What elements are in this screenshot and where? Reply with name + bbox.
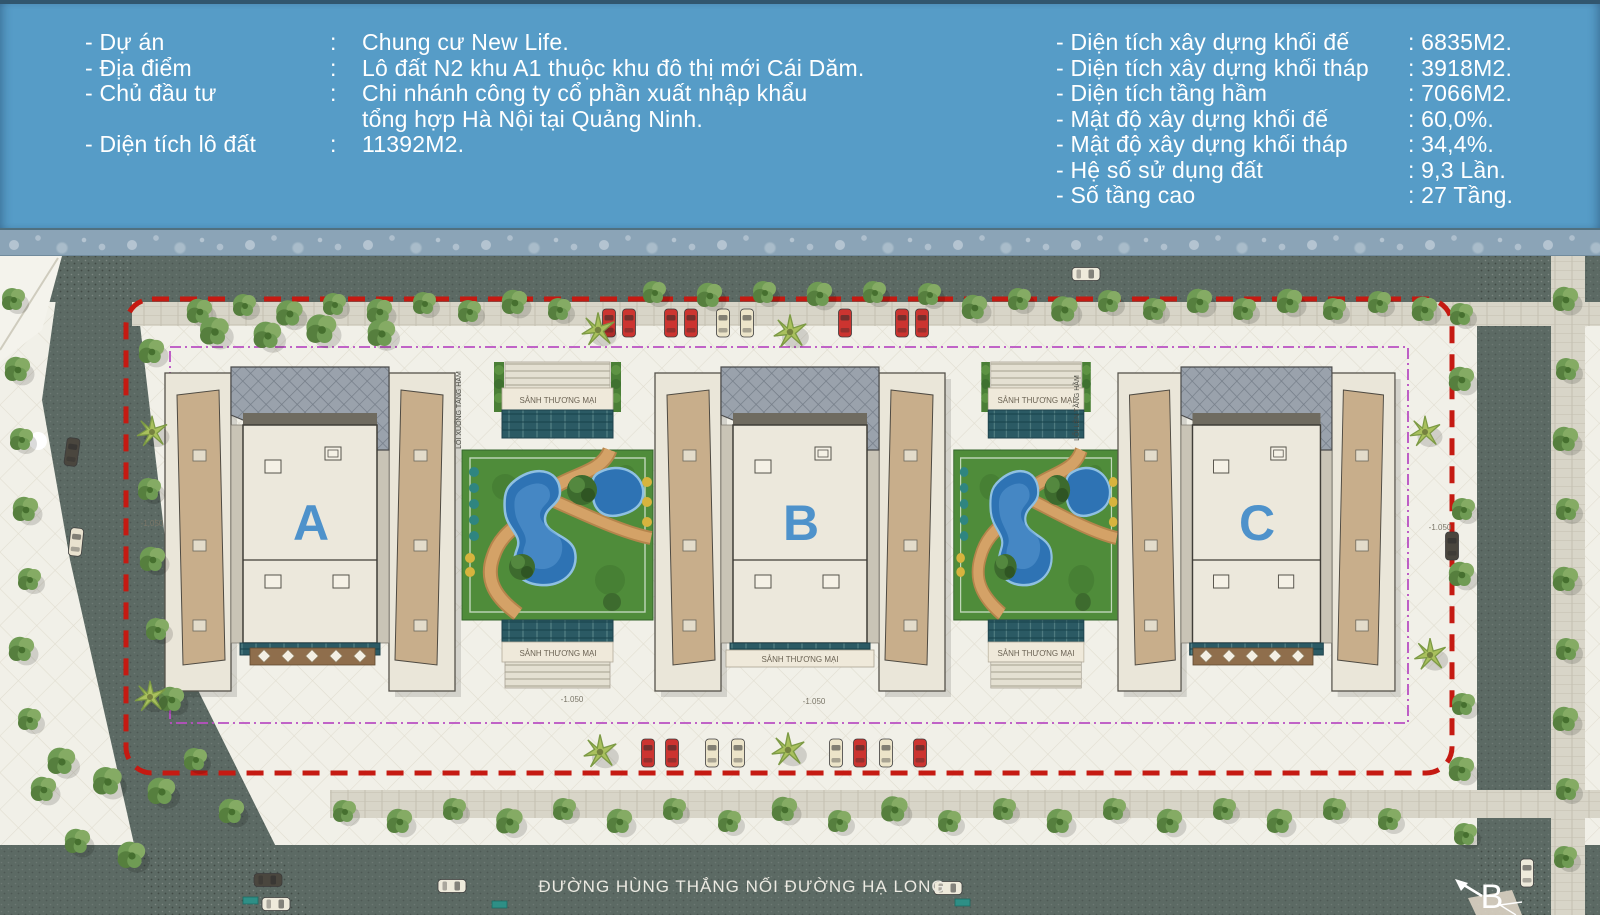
info-value: : 9,3 Lần. — [1408, 158, 1586, 184]
info-row: - Mật độ xây dựng khối tháp : 34,4%. — [1056, 132, 1586, 158]
info-value: : 27 Tầng. — [1408, 183, 1586, 209]
info-row: - Diện tích lô đất : 11392M2. — [85, 132, 985, 158]
project-info-header: - Dự án : Chung cư New Life. - Địa điểm … — [0, 0, 1600, 228]
building-a-label: A — [293, 495, 329, 551]
info-value: : 34,4%. — [1408, 132, 1586, 158]
info-label: - Chủ đầu tư — [85, 81, 330, 132]
street-name: ĐƯỜNG HÙNG THẮNG NỐI ĐƯỜNG HẠ LONG — [538, 876, 945, 896]
info-label: - Diện tích tầng hầm — [1056, 81, 1408, 107]
info-row: - Diện tích xây dựng khối tháp : 3918M2. — [1056, 56, 1586, 82]
info-label: - Diện tích xây dựng khối đế — [1056, 30, 1408, 56]
info-value: Chung cư New Life. — [362, 30, 985, 56]
info-value-line1: Chi nhánh công ty cổ phần xuất nhập khẩu — [362, 80, 807, 106]
elevation-label: -1.050 — [1429, 523, 1452, 532]
info-row: - Hệ số sử dụng đất : 9,3 Lần. — [1056, 158, 1586, 184]
info-label: - Số tầng cao — [1056, 183, 1408, 209]
info-row: - Số tầng cao : 27 Tầng. — [1056, 183, 1586, 209]
lobby-label: SẢNH THƯƠNG MẠI — [519, 649, 596, 658]
slide: A B C SẢNH THƯƠNG MẠI SẢNH THƯƠNG MẠI SẢ… — [0, 0, 1600, 915]
info-label: - Diện tích xây dựng khối tháp — [1056, 56, 1408, 82]
info-value: : 6835M2. — [1408, 30, 1586, 56]
project-info-right: - Diện tích xây dựng khối đế : 6835M2. -… — [1056, 30, 1586, 209]
info-label: - Hệ số sử dụng đất — [1056, 158, 1408, 184]
info-label: - Mật độ xây dựng khối đế — [1056, 107, 1408, 133]
info-label: - Địa điểm — [85, 56, 330, 82]
info-label: - Dự án — [85, 30, 330, 56]
lobby-label: SẢNH THƯƠNG MẠI — [997, 396, 1074, 405]
info-colon: : — [330, 30, 362, 56]
info-colon: : — [330, 56, 362, 82]
terrace-a — [250, 648, 375, 665]
building-c-label: C — [1239, 495, 1275, 551]
info-value: : 3918M2. — [1408, 56, 1586, 82]
info-row: - Diện tích xây dựng khối đế : 6835M2. — [1056, 30, 1586, 56]
info-value: Chi nhánh công ty cổ phần xuất nhập khẩu… — [362, 81, 985, 132]
info-value: Lô đất N2 khu A1 thuộc khu đô thị mới Cá… — [362, 56, 985, 82]
lobby-label: SẢNH THƯƠNG MẠI — [997, 649, 1074, 658]
lobby-label: SẢNH THƯƠNG MẠI — [519, 396, 596, 405]
info-row: - Mật độ xây dựng khối đế : 60,0%. — [1056, 107, 1586, 133]
terrace-c — [1193, 648, 1313, 665]
info-row: - Chủ đầu tư : Chi nhánh công ty cổ phần… — [85, 81, 985, 132]
info-label: - Diện tích lô đất — [85, 132, 330, 158]
info-colon: : — [330, 132, 362, 158]
info-value: : 7066M2. — [1408, 81, 1586, 107]
section-marker-label: B — [1481, 878, 1504, 915]
elevation-label: -1.050 — [141, 519, 164, 528]
info-value: 11392M2. — [362, 132, 985, 158]
info-value-line2: tổng hợp Hà Nội tại Quảng Ninh. — [362, 106, 703, 132]
project-info-left: - Dự án : Chung cư New Life. - Địa điểm … — [85, 30, 985, 158]
info-value: : 60,0%. — [1408, 107, 1586, 133]
lobby-label: SẢNH THƯƠNG MẠI — [761, 655, 838, 664]
info-row: - Dự án : Chung cư New Life. — [85, 30, 985, 56]
info-row: - Địa điểm : Lô đất N2 khu A1 thuộc khu … — [85, 56, 985, 82]
info-row: - Diện tích tầng hầm : 7066M2. — [1056, 81, 1586, 107]
building-b-label: B — [783, 495, 819, 551]
info-label: - Mật độ xây dựng khối tháp — [1056, 132, 1408, 158]
elevation-label: -1.050 — [561, 695, 584, 704]
elevation-label: -1.050 — [803, 697, 826, 706]
info-colon: : — [330, 81, 362, 132]
ornament-band — [0, 228, 1600, 256]
